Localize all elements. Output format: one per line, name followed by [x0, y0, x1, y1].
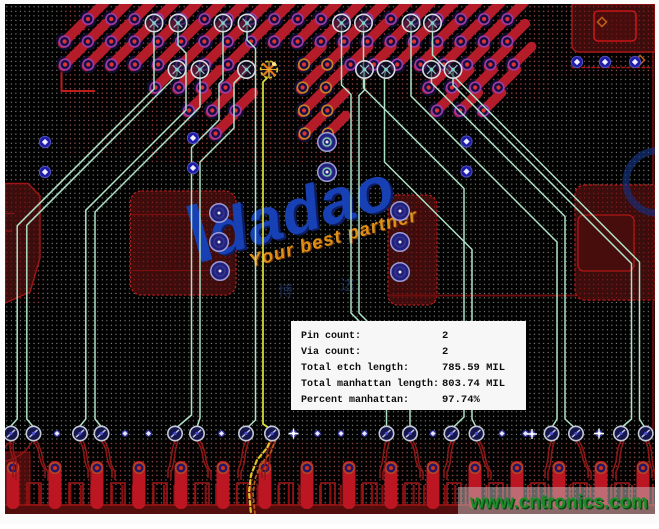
svg-text:Total manhattan length:: Total manhattan length:: [301, 378, 439, 390]
svg-text:Percent manhattan:: Percent manhattan:: [301, 394, 409, 406]
svg-text:785.59 MIL: 785.59 MIL: [442, 362, 505, 374]
svg-text:2: 2: [442, 346, 448, 358]
svg-text:达: 达: [340, 277, 355, 294]
svg-text:97.74%: 97.74%: [442, 394, 481, 406]
svg-text:www.cntronics.com: www.cntronics.com: [469, 491, 648, 513]
svg-text:Via count:: Via count:: [301, 346, 361, 358]
svg-text:803.74 MIL: 803.74 MIL: [442, 378, 505, 390]
svg-text:博: 博: [278, 283, 293, 300]
svg-text:2: 2: [442, 330, 448, 342]
svg-text:Pin count:: Pin count:: [301, 330, 361, 342]
svg-text:Total etch length:: Total etch length:: [301, 362, 409, 374]
